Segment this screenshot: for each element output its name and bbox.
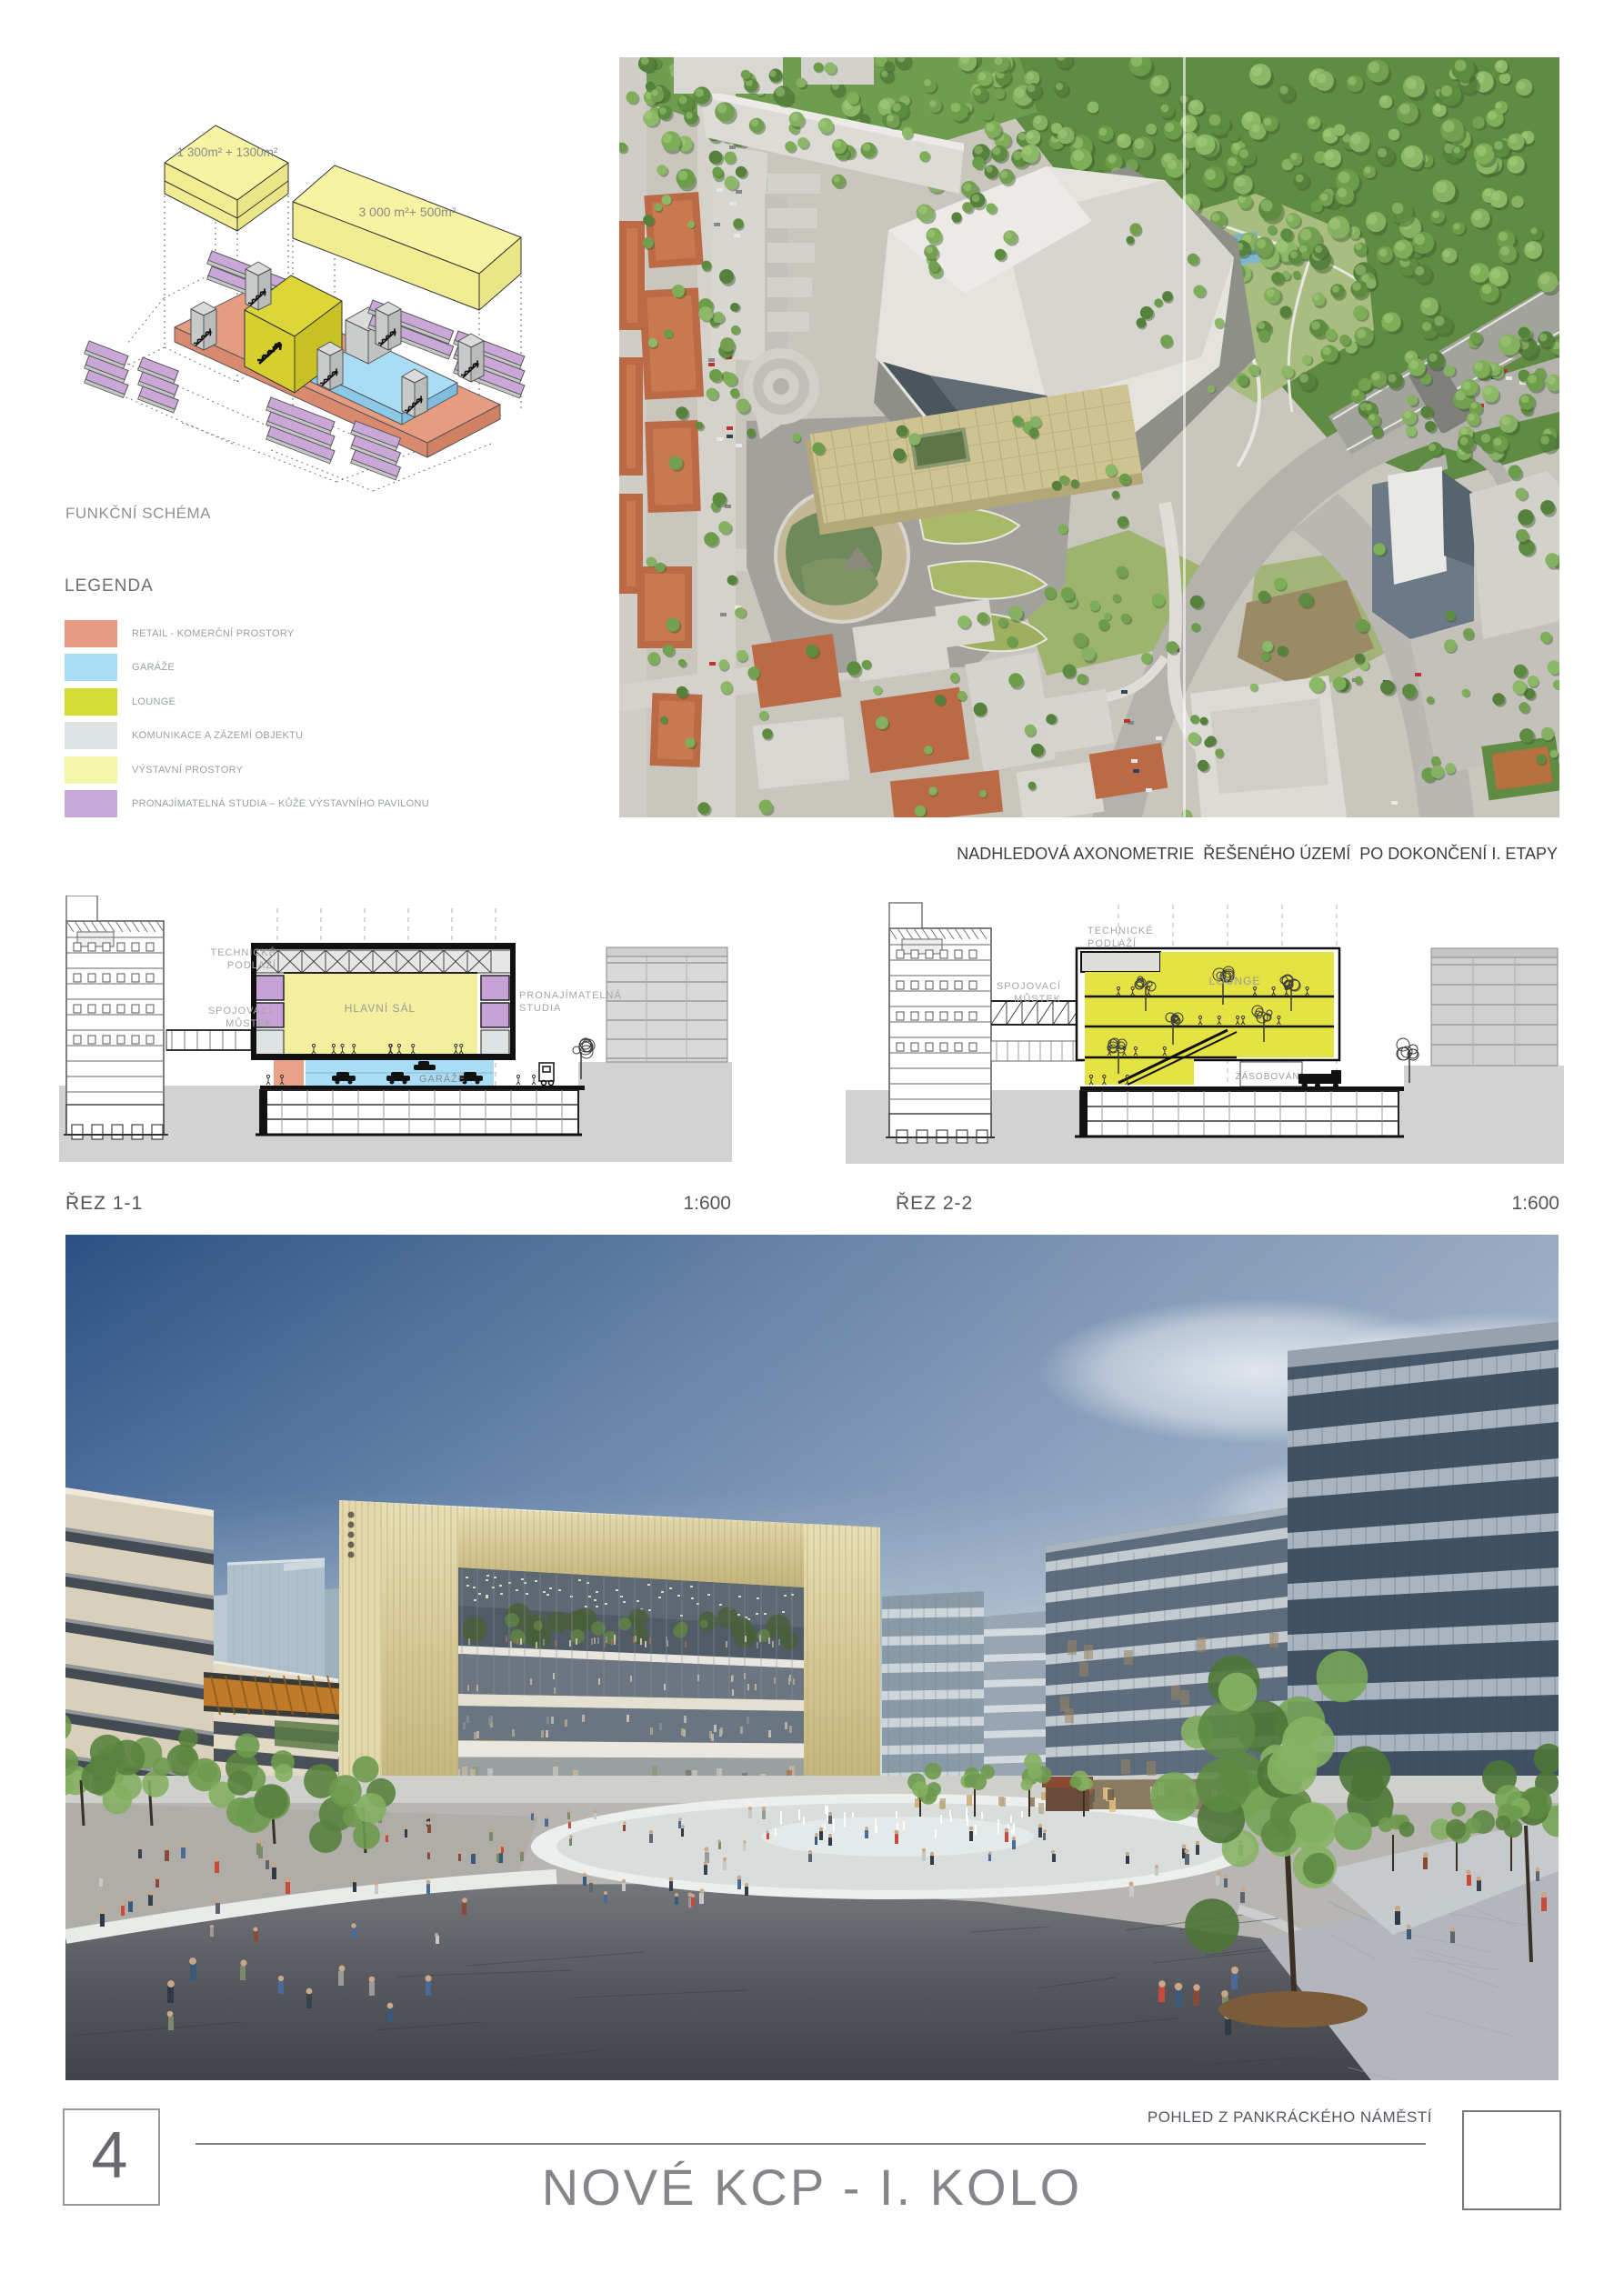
- svg-text:1 300m² + 1300m²: 1 300m² + 1300m²: [177, 145, 278, 159]
- svg-text:HLAVNÍ SÁL: HLAVNÍ SÁL: [345, 1001, 416, 1015]
- svg-text:PODLAŽÍ: PODLAŽÍ: [1088, 937, 1137, 949]
- svg-text:MŮSTEK: MŮSTEK: [1014, 993, 1061, 1005]
- svg-text:MŮSTEK: MŮSTEK: [226, 1017, 273, 1029]
- svg-text:SPOJOVACÍ: SPOJOVACÍ: [997, 980, 1061, 992]
- svg-text:PODLAŽÍ: PODLAŽÍ: [227, 959, 276, 971]
- svg-text:ZÁSOBOVÁNÍ: ZÁSOBOVÁNÍ: [1235, 1070, 1303, 1082]
- svg-text:3 000 m²+ 500m²: 3 000 m²+ 500m²: [359, 205, 456, 219]
- svg-text:STUDIA: STUDIA: [519, 1003, 561, 1014]
- svg-text:PRONAJÍMATELNÁ: PRONAJÍMATELNÁ: [519, 989, 622, 1001]
- svg-text:TECHNICKÉ: TECHNICKÉ: [1088, 925, 1154, 936]
- svg-text:LOUNGE: LOUNGE: [1209, 975, 1261, 987]
- svg-text:SPOJOVACÍ: SPOJOVACÍ: [208, 1005, 273, 1016]
- svg-text:TECHNICKÉ: TECHNICKÉ: [210, 946, 276, 958]
- svg-text:GARÁŽE: GARÁŽE: [419, 1073, 466, 1085]
